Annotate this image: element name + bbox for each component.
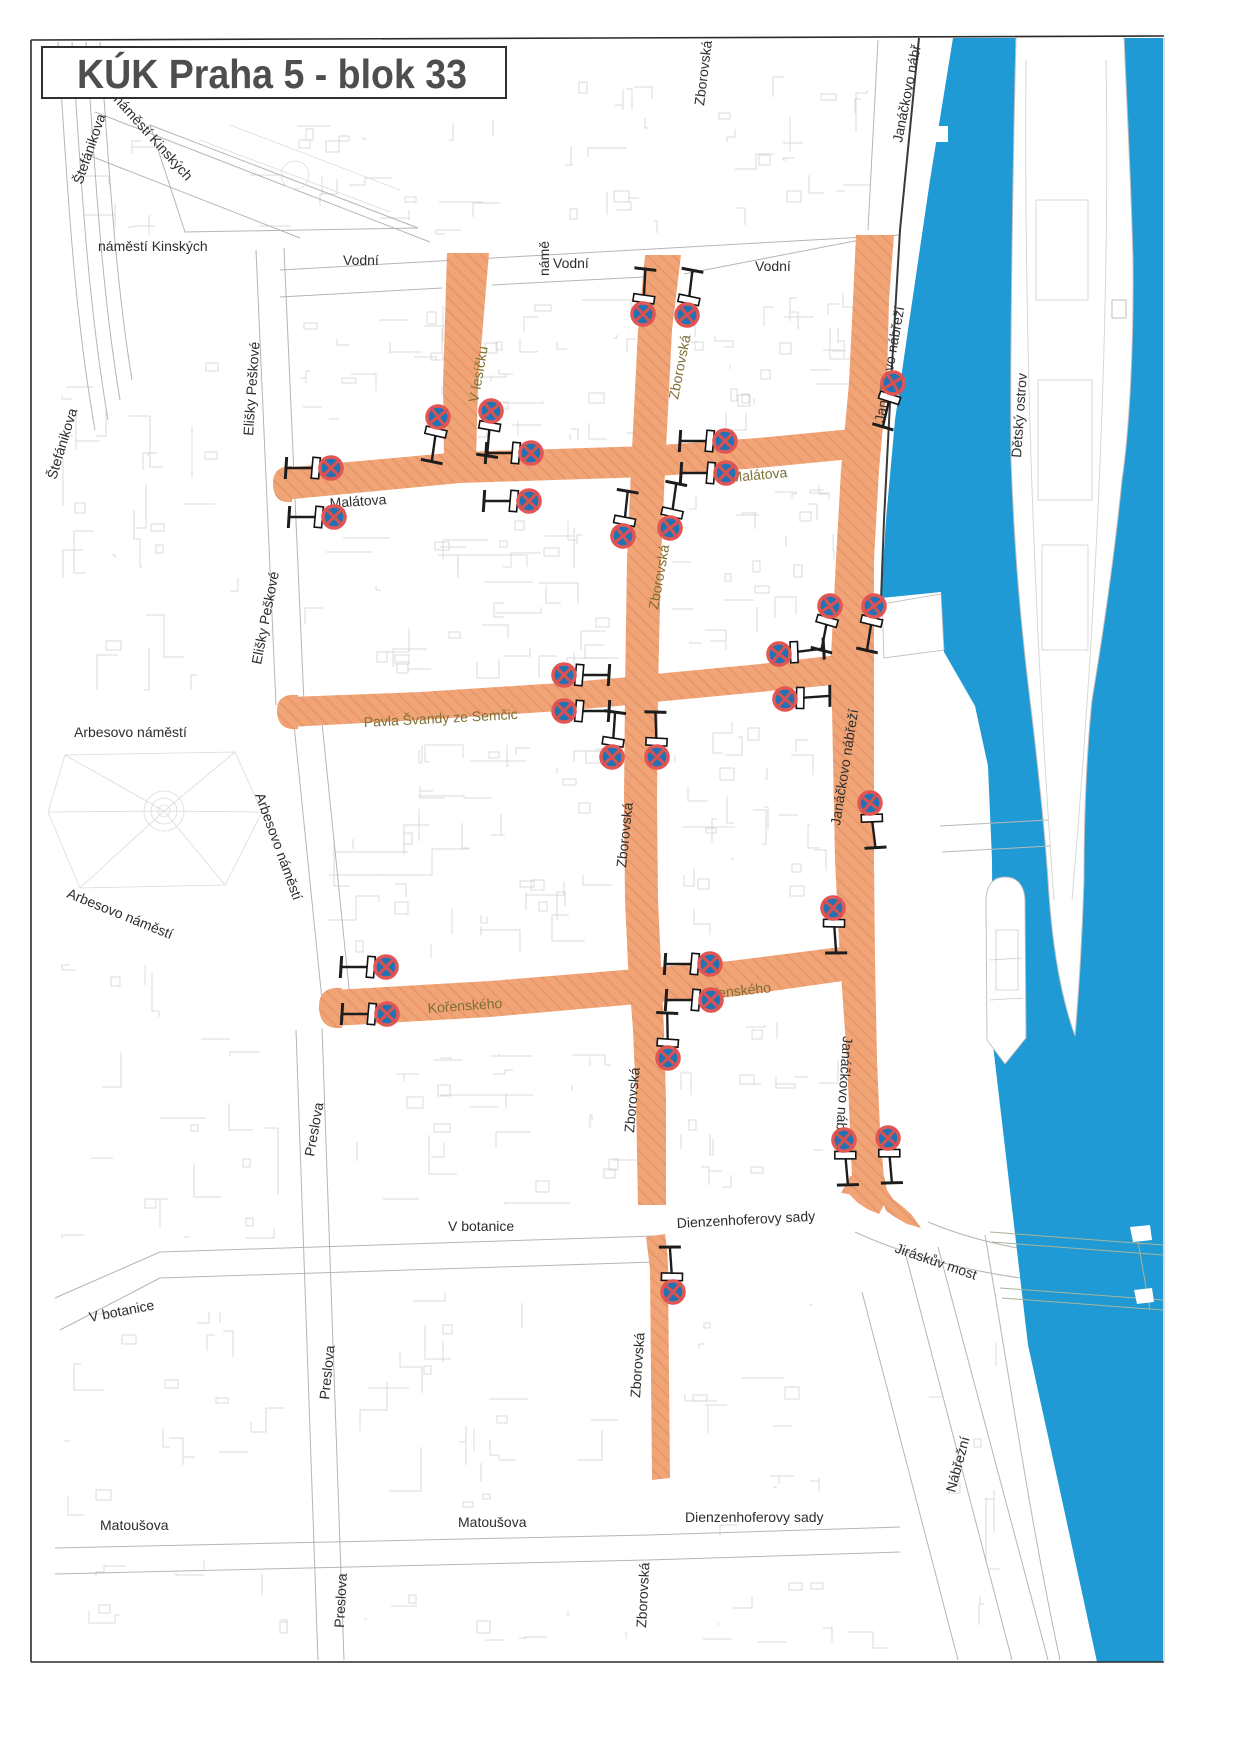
svg-text:V botanice: V botanice (448, 1218, 514, 1234)
svg-text:Preslova: Preslova (331, 1573, 350, 1628)
svg-text:Matoušova: Matoušova (458, 1514, 527, 1530)
svg-text:Vodní: Vodní (343, 252, 379, 268)
svg-text:Vodní: Vodní (553, 255, 589, 271)
svg-text:Vodní: Vodní (755, 258, 791, 274)
svg-text:Dienzenhoferovy sady: Dienzenhoferovy sady (685, 1509, 824, 1525)
svg-text:Zborovská: Zborovská (633, 1562, 652, 1628)
svg-text:náměstí Kinských: náměstí Kinských (98, 238, 208, 254)
svg-text:námě: námě (536, 241, 552, 276)
svg-text:KÚK Praha 5 - blok 33: KÚK Praha 5 - blok 33 (77, 51, 467, 97)
svg-text:Matoušova: Matoušova (100, 1517, 169, 1533)
svg-text:Arbesovo náměstí: Arbesovo náměstí (74, 724, 187, 740)
